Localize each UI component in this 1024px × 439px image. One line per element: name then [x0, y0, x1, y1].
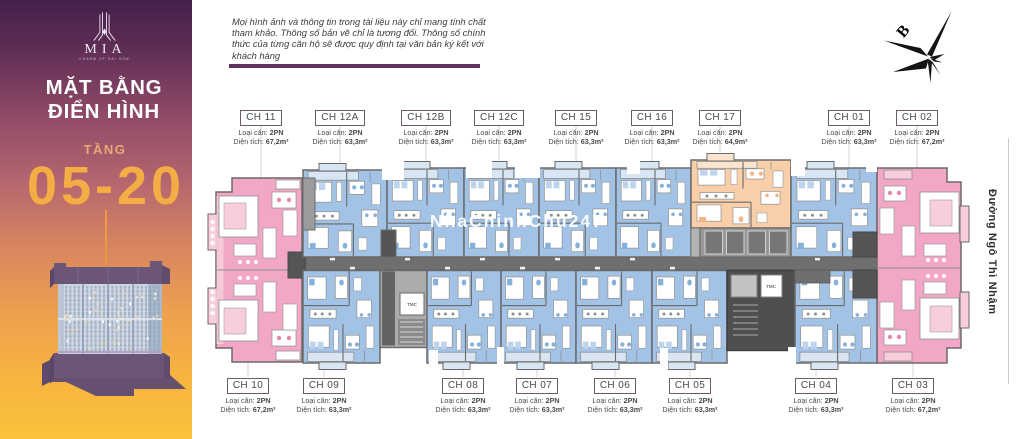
svg-text:TMC: TMC	[766, 284, 776, 289]
svg-text:TMC: TMC	[407, 302, 417, 307]
